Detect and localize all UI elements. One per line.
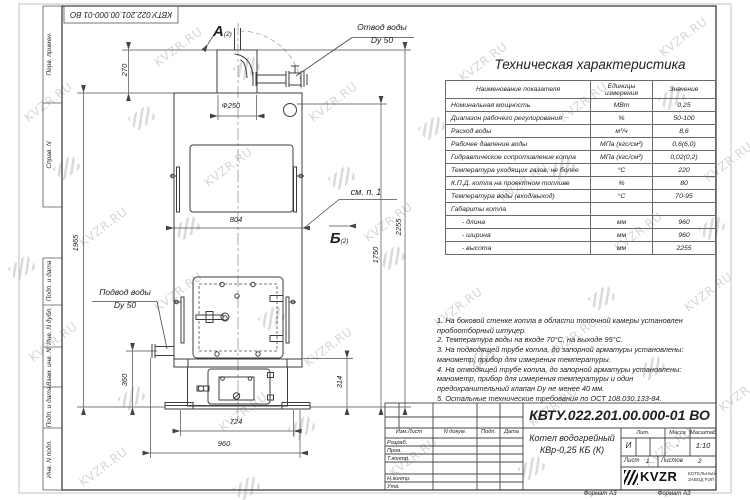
col-sign: Подп. xyxy=(477,429,500,435)
dim-2255: 2255 xyxy=(395,207,405,247)
role-utv: Утв. xyxy=(387,484,431,490)
spec-row: К.П.Д. котла на проектном топливе%80 xyxy=(446,177,716,190)
spec-cell: мм xyxy=(591,216,653,229)
spec-cell: Температура воды (вход/выход) xyxy=(446,190,591,203)
spec-cell: 960 xyxy=(653,229,716,242)
view-a-ref: (2) xyxy=(224,31,232,38)
dim-1965: 1965 xyxy=(72,223,82,263)
watermark-logo-icon xyxy=(588,284,617,311)
watermark-logo-icon xyxy=(288,414,317,441)
watermark-logo-icon xyxy=(8,254,37,281)
product-name-line1: Котел водогрейный xyxy=(524,434,620,444)
kvzr-brand-sub2: ЗАВОД РЭП xyxy=(688,477,714,482)
sheet-label: Лист xyxy=(624,458,639,465)
outlet-label-line2: Dy 50 xyxy=(347,36,417,45)
dim-804: 804 xyxy=(216,216,256,226)
outlet-label-line1: Отвод воды xyxy=(347,23,417,32)
lit-header: Лит. xyxy=(621,430,665,436)
spec-cell: Рабочее давление воды xyxy=(446,138,591,151)
corner-doc-number: КВТУ.022.201.00.000-01 ВО xyxy=(64,6,178,23)
spec-row: Температура воды (вход/выход)°С70-95 xyxy=(446,190,716,203)
watermark-logo-icon xyxy=(128,104,157,131)
watermark-text: KVZR.RU xyxy=(76,204,130,249)
spec-cell: Габариты котла xyxy=(446,203,591,216)
spec-cell: °С xyxy=(591,190,653,203)
role-prov: Пров. xyxy=(387,448,431,454)
mass-header: Масса xyxy=(665,430,690,436)
watermark-text: KVZR.RU xyxy=(361,199,415,244)
dim-270: 270 xyxy=(121,50,131,90)
dim-960: 960 xyxy=(204,440,244,450)
blueprint-page: KVZR.RUKVZR.RUKVZR.RUKVZR.RUKVZR.RUKVZR.… xyxy=(0,0,750,500)
dim-724: 724 xyxy=(216,418,256,428)
role-tkontr: Т.контр. xyxy=(387,456,431,462)
inlet-label-line2: Dy 50 xyxy=(90,301,160,310)
sheets-label: Листов xyxy=(661,458,683,465)
note-item: 1. На боковой стенке котла в области топ… xyxy=(437,316,695,335)
note-item: 4. На отводящей трубе котла, до запорной… xyxy=(437,365,695,394)
spec-cell: 2255 xyxy=(653,242,716,255)
spec-table-title: Техническая характеристика xyxy=(460,58,720,73)
spec-row: Рабочее давление водыМПа (кгс/см²)0,6(6,… xyxy=(446,138,716,151)
spec-cell: Гидравлическое сопротивление котла xyxy=(446,151,591,164)
spec-cell: МВт xyxy=(591,99,653,112)
watermark-text: KVZR.RU xyxy=(656,14,710,59)
kvzr-brand: KVZR xyxy=(640,469,677,484)
view-b-ref: (2) xyxy=(341,238,349,245)
spec-cell xyxy=(653,203,716,216)
see-note-label: см. п. 1 xyxy=(334,188,398,198)
dim-1750: 1750 xyxy=(372,235,382,275)
dim-314: 314 xyxy=(336,362,346,402)
format-label-left: Формат А3 xyxy=(572,491,628,498)
spec-header-units: Единицы измерения xyxy=(591,81,653,99)
spec-cell: % xyxy=(591,177,653,190)
spec-cell: 960 xyxy=(653,216,716,229)
spec-cell: Расход воды xyxy=(446,125,591,138)
spec-row: Диапазон рабочего регулирования%50-100 xyxy=(446,112,716,125)
view-b-marker: Б(2) xyxy=(330,230,349,248)
spec-row: Температура уходящих газов, не более°С22… xyxy=(446,164,716,177)
watermark-text: KVZR.RU xyxy=(76,444,130,489)
sheet-value: 1 xyxy=(646,458,650,465)
scale-header: Масштаб xyxy=(690,430,716,436)
spec-row: Гидравлическое сопротивление котлаМПа (к… xyxy=(446,151,716,164)
technical-notes: 1. На боковой стенке котла в области топ… xyxy=(437,316,695,403)
spec-row: Габариты котла xyxy=(446,203,716,216)
spec-header-name: Наименование показателя xyxy=(446,81,591,99)
spec-cell: 220 xyxy=(653,164,716,177)
spec-cell: мм xyxy=(591,229,653,242)
spec-row: Номинальная мощностьМВт0,25 xyxy=(446,99,716,112)
spec-cell: МПа (кгс/см²) xyxy=(591,151,653,164)
spec-cell: 0,25 xyxy=(653,99,716,112)
spec-cell: Номинальная мощность xyxy=(446,99,591,112)
kvzr-logo-icon xyxy=(624,470,638,485)
spec-cell: мм xyxy=(591,242,653,255)
spec-cell: °С xyxy=(591,164,653,177)
scale-value: 1:10 xyxy=(690,442,716,450)
dim-360: 360 xyxy=(121,360,131,400)
watermark-logo-icon xyxy=(233,474,262,500)
strip-label-inv-podl: Инв. N подл. xyxy=(46,413,58,500)
watermark-logo-icon xyxy=(173,214,202,241)
product-name-line2: КВр-0,25 КБ (К) xyxy=(524,446,620,456)
spec-table: Наименование показателя Единицы измерени… xyxy=(445,80,716,255)
col-doc: N докум. xyxy=(433,429,477,435)
spec-cell: % xyxy=(591,112,653,125)
spec-cell: 0,02(0,2) xyxy=(653,151,716,164)
title-doc-number: КВТУ.022.201.00.000-01 ВО xyxy=(523,403,716,427)
spec-cell: Диапазон рабочего регулирования xyxy=(446,112,591,125)
strip-label-sprav-n: Справ. N xyxy=(46,109,58,201)
col-date: Дата xyxy=(500,429,523,435)
watermark-text: KVZR.RU xyxy=(716,369,750,414)
watermark-text: KVZR.RU xyxy=(151,24,205,69)
col-izm-list: Изм.Лист xyxy=(385,429,433,435)
spec-cell: К.П.Д. котла на проектном топливе xyxy=(446,177,591,190)
spec-header-value: Значение xyxy=(653,81,716,99)
spec-cell: 70-95 xyxy=(653,190,716,203)
note-item: 2. Температура воды на входе 70°С, на вы… xyxy=(437,335,695,345)
view-b-letter: Б xyxy=(330,230,341,247)
note-item: 5. Остальные технические требования по О… xyxy=(437,394,695,404)
outlet-label: Отвод воды Dy 50 xyxy=(347,23,417,46)
spec-cell: 8,6 xyxy=(653,125,716,138)
watermark-logo-icon xyxy=(258,304,287,331)
spec-header-row: Наименование показателя Единицы измерени… xyxy=(446,81,716,99)
strip-label-perv-primen: Перв. примен. xyxy=(46,8,58,100)
spec-cell: 0,6(6,0) xyxy=(653,138,716,151)
spec-cell: МПа (кгс/см²) xyxy=(591,138,653,151)
note-item: 3. На подводящей трубе котла, до запорно… xyxy=(437,345,695,364)
watermark-text: KVZR.RU xyxy=(301,324,355,369)
spec-cell xyxy=(591,203,653,216)
spec-row: - длинамм960 xyxy=(446,216,716,229)
view-a-marker: А(2) xyxy=(213,23,232,41)
sheets-value: 2 xyxy=(698,458,702,465)
spec-cell: м³/ч xyxy=(591,125,653,138)
dim-f250: Ф250 xyxy=(211,102,251,112)
spec-cell: 80 xyxy=(653,177,716,190)
spec-cell: - высота xyxy=(446,242,591,255)
mass-value: - xyxy=(665,442,690,451)
spec-cell: Температура уходящих газов, не более xyxy=(446,164,591,177)
watermark-text: KVZR.RU xyxy=(306,79,360,124)
watermark-logo-icon xyxy=(518,454,547,481)
watermark-logo-icon xyxy=(418,114,447,141)
spec-row: - ширинамм960 xyxy=(446,229,716,242)
role-nkontr: Н.контр. xyxy=(387,476,431,482)
lit-value: И xyxy=(621,442,636,451)
watermark-logo-icon xyxy=(233,54,262,81)
spec-cell: 50-100 xyxy=(653,112,716,125)
spec-row: Расход водым³/ч8,6 xyxy=(446,125,716,138)
watermark-text: KVZR.RU xyxy=(201,144,255,189)
spec-cell: - длина xyxy=(446,216,591,229)
view-a-letter: А xyxy=(213,23,224,40)
watermark-text: KVZR.RU xyxy=(681,269,735,314)
inlet-label: Подвод воды Dy 50 xyxy=(90,288,160,311)
kvzr-brand-sub1: КОТЕЛЬНЫЙ xyxy=(688,471,717,476)
spec-cell: - ширина xyxy=(446,229,591,242)
inlet-label-line1: Подвод воды xyxy=(90,288,160,297)
role-razrab: Разраб. xyxy=(387,440,431,446)
format-label-right: Формат А3 xyxy=(646,491,702,498)
spec-row: - высотамм2255 xyxy=(446,242,716,255)
